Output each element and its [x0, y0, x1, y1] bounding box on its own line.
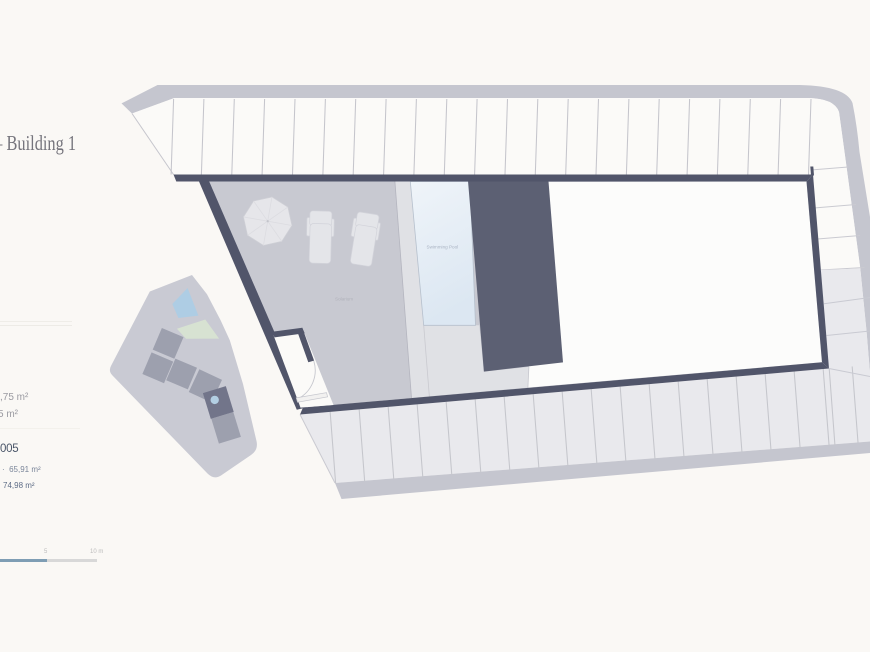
- svg-text:Swimming Pool: Swimming Pool: [427, 244, 459, 249]
- svg-text:Solarium: Solarium: [335, 297, 353, 302]
